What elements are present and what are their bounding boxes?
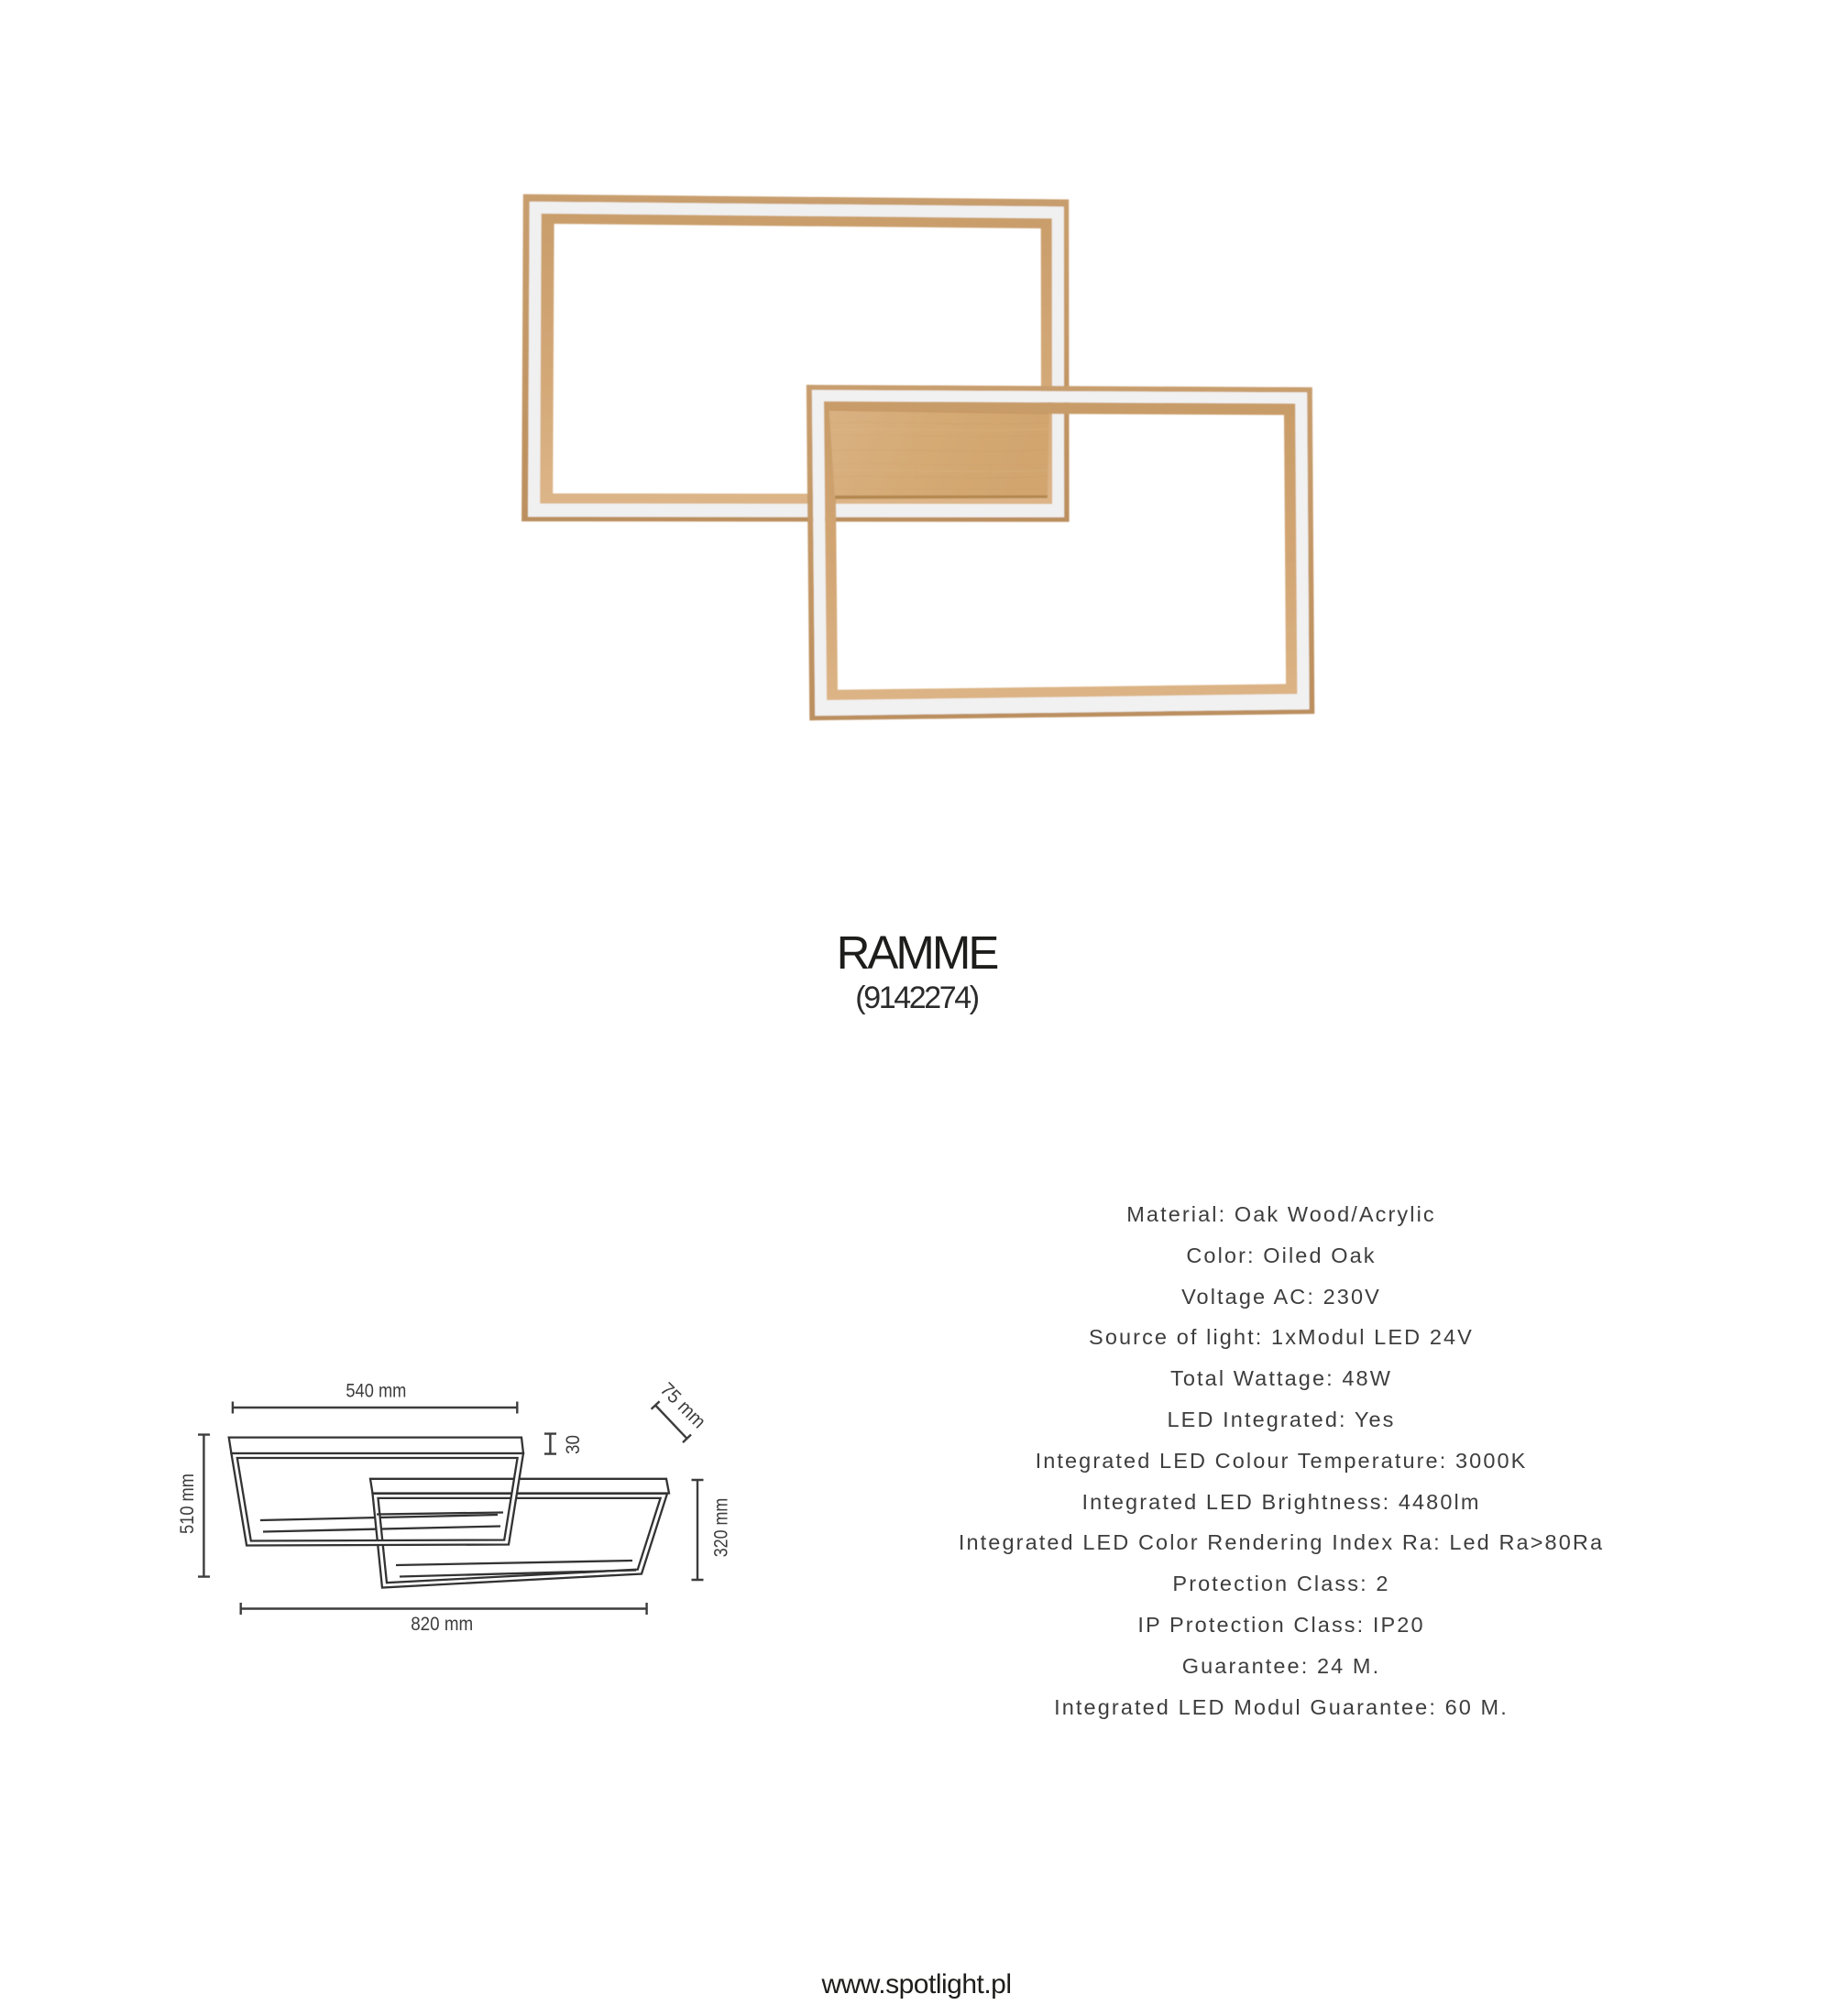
svg-text:540 mm: 540 mm [346,1380,406,1401]
svg-text:30: 30 [563,1435,584,1454]
svg-text:320 mm: 320 mm [711,1498,732,1558]
svg-text:75 mm: 75 mm [656,1379,710,1433]
svg-text:820 mm: 820 mm [411,1614,473,1635]
svg-text:510 mm: 510 mm [177,1474,198,1534]
